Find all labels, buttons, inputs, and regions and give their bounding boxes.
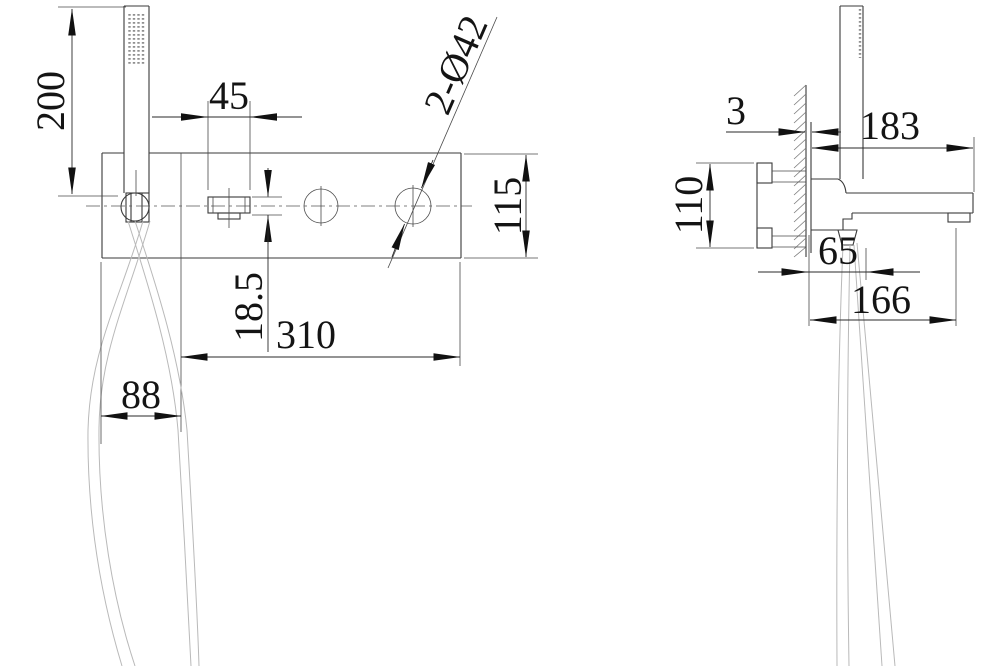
- dim-310-label: 310: [276, 312, 336, 357]
- dim-plate-offset: 3: [726, 88, 841, 133]
- dim-shower-height: 200: [28, 7, 126, 196]
- dim-handle-height: 18.5: [226, 168, 282, 352]
- mounting-hole-right: [395, 185, 431, 227]
- dim-65-label: 65: [818, 228, 858, 273]
- dim-body-width: 310: [181, 262, 460, 366]
- front-view: 200 45 115 18.5: [28, 6, 538, 666]
- dim-110-label: 110: [666, 176, 711, 235]
- dim-handle-width: 45: [152, 73, 302, 190]
- dim-115-label: 115: [485, 177, 530, 236]
- spray-face-dots: [130, 14, 144, 64]
- technical-drawing-canvas: 200 45 115 18.5: [0, 0, 1000, 666]
- bath-mixer-drawing: 200 45 115 18.5: [0, 0, 1000, 666]
- spout-aerator: [948, 213, 970, 222]
- dim-inlet-spacing: 110: [666, 163, 754, 248]
- hole-callout: 2-Ø42: [388, 9, 497, 268]
- dim-88-label: 88: [121, 372, 161, 417]
- shower-hose-front: [88, 221, 199, 666]
- dim-plate-height: 115: [464, 154, 538, 258]
- dim-3-label: 3: [726, 88, 746, 133]
- side-view: 3 183 110 65 166: [666, 6, 974, 666]
- hand-shower-side: [840, 6, 863, 179]
- dim-183-label: 183: [860, 103, 920, 148]
- dim-166-label: 166: [851, 277, 911, 322]
- dim-45-label: 45: [209, 73, 249, 118]
- callout-2-d42-label: 2-Ø42: [415, 9, 497, 121]
- dim-200-label: 200: [28, 71, 73, 131]
- shower-holder: [121, 170, 149, 222]
- hand-shower-wand: [124, 6, 149, 193]
- mounting-hole-left: [304, 186, 338, 226]
- mixer-handle: [208, 188, 250, 228]
- dim-holder-width: 88: [101, 262, 181, 444]
- dim-18-5-label: 18.5: [226, 272, 271, 342]
